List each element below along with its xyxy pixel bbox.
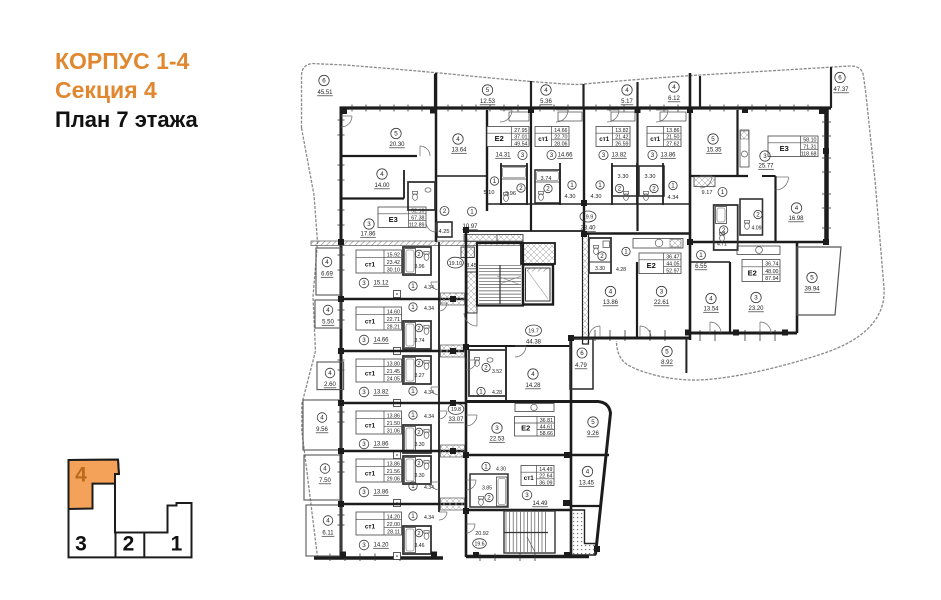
svg-text:4: 4 [75, 464, 87, 487]
svg-text:3: 3 [75, 533, 87, 556]
svg-text:1: 1 [171, 533, 183, 556]
svg-text:2: 2 [123, 533, 135, 556]
